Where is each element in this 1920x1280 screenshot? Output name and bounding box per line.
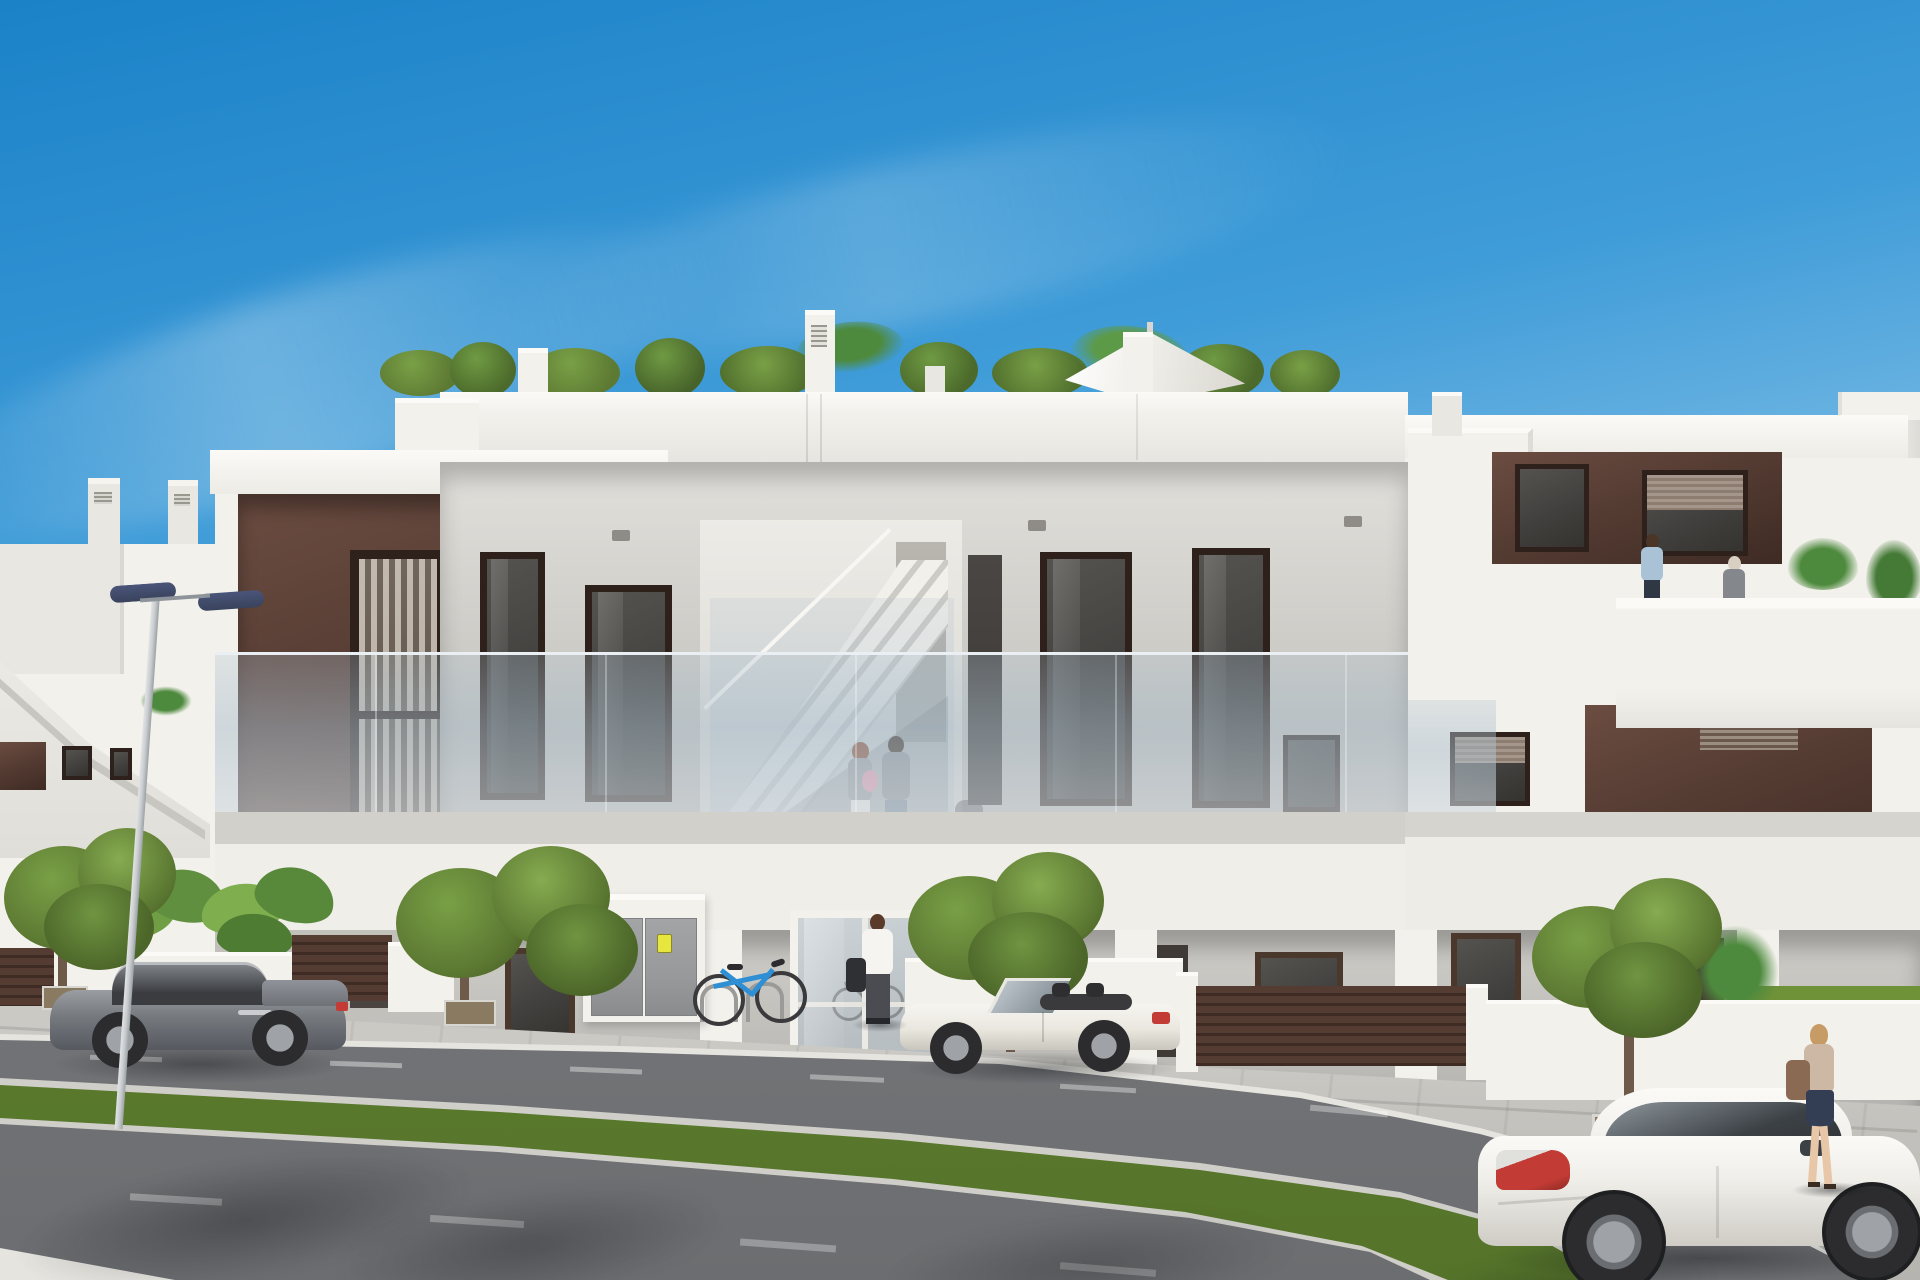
conifer bbox=[450, 342, 516, 398]
wheel bbox=[930, 1022, 982, 1074]
bicycle-blue bbox=[693, 938, 805, 1022]
glass-seam bbox=[1115, 655, 1117, 815]
chimney-tall bbox=[805, 310, 835, 401]
bag bbox=[846, 958, 866, 992]
glass-seam bbox=[605, 655, 607, 815]
torso bbox=[862, 929, 893, 975]
taillight bbox=[336, 1002, 348, 1011]
parasol-canopy bbox=[1065, 332, 1245, 392]
tree-pit bbox=[444, 1000, 496, 1026]
bike-handlebar bbox=[770, 958, 785, 968]
legs bbox=[1819, 1126, 1832, 1184]
white-convertible bbox=[900, 978, 1182, 1082]
architectural-render-scene bbox=[0, 0, 1920, 1280]
chimney-louvre bbox=[174, 494, 190, 506]
door-line bbox=[1042, 1012, 1044, 1042]
taillight bbox=[1152, 1012, 1170, 1024]
wheel bbox=[1078, 1020, 1130, 1072]
chimney bbox=[1123, 332, 1153, 401]
wall-vent bbox=[1344, 516, 1362, 527]
window bbox=[1515, 464, 1589, 552]
fence-pillar bbox=[1466, 984, 1488, 1080]
cabinet-door bbox=[645, 918, 697, 1016]
headrest bbox=[1052, 983, 1070, 997]
entrance-man bbox=[846, 914, 910, 1034]
roof-parasol bbox=[1065, 322, 1245, 398]
skirt bbox=[1806, 1090, 1834, 1128]
headrest bbox=[1086, 983, 1104, 997]
glass-seam bbox=[855, 655, 857, 815]
head bbox=[1810, 1024, 1828, 1046]
street-tree bbox=[396, 842, 646, 1028]
neighbour-window bbox=[62, 746, 92, 780]
warning-sticker bbox=[657, 934, 672, 953]
balcony-glass-band bbox=[215, 652, 1408, 815]
conifer bbox=[635, 338, 705, 398]
door-line bbox=[1716, 1166, 1719, 1238]
chimney-louvre bbox=[94, 492, 112, 504]
bike-saddle bbox=[727, 964, 743, 970]
chimney bbox=[1432, 392, 1462, 436]
legs bbox=[866, 974, 890, 1020]
shoes bbox=[1808, 1182, 1820, 1187]
neighbour-upper bbox=[0, 544, 124, 674]
balcony-glass-right bbox=[1408, 700, 1496, 812]
neighbour-brown-wall bbox=[0, 742, 46, 790]
glass-seam bbox=[1345, 655, 1347, 815]
canopy bbox=[1584, 942, 1702, 1038]
wall-vent bbox=[1028, 520, 1046, 531]
right-terrace-parapet bbox=[1616, 598, 1920, 728]
parapet-joint bbox=[1136, 394, 1138, 460]
wall-vent bbox=[612, 530, 630, 541]
chimney-louvre bbox=[811, 325, 827, 347]
shoes bbox=[866, 1018, 890, 1024]
roller-shutter bbox=[1647, 475, 1743, 510]
conifer bbox=[380, 350, 460, 396]
glass-seam bbox=[375, 655, 377, 815]
slat-fence-right bbox=[1196, 986, 1468, 1066]
conifer bbox=[1270, 350, 1340, 398]
legs bbox=[1808, 1126, 1820, 1182]
canopy bbox=[526, 904, 638, 996]
shoes bbox=[1824, 1184, 1836, 1189]
torso bbox=[1641, 547, 1663, 581]
sidewalk-woman bbox=[1782, 1024, 1872, 1200]
street-lamp bbox=[110, 576, 330, 1136]
lamp-pole bbox=[115, 594, 160, 1129]
taillight bbox=[1496, 1150, 1570, 1190]
